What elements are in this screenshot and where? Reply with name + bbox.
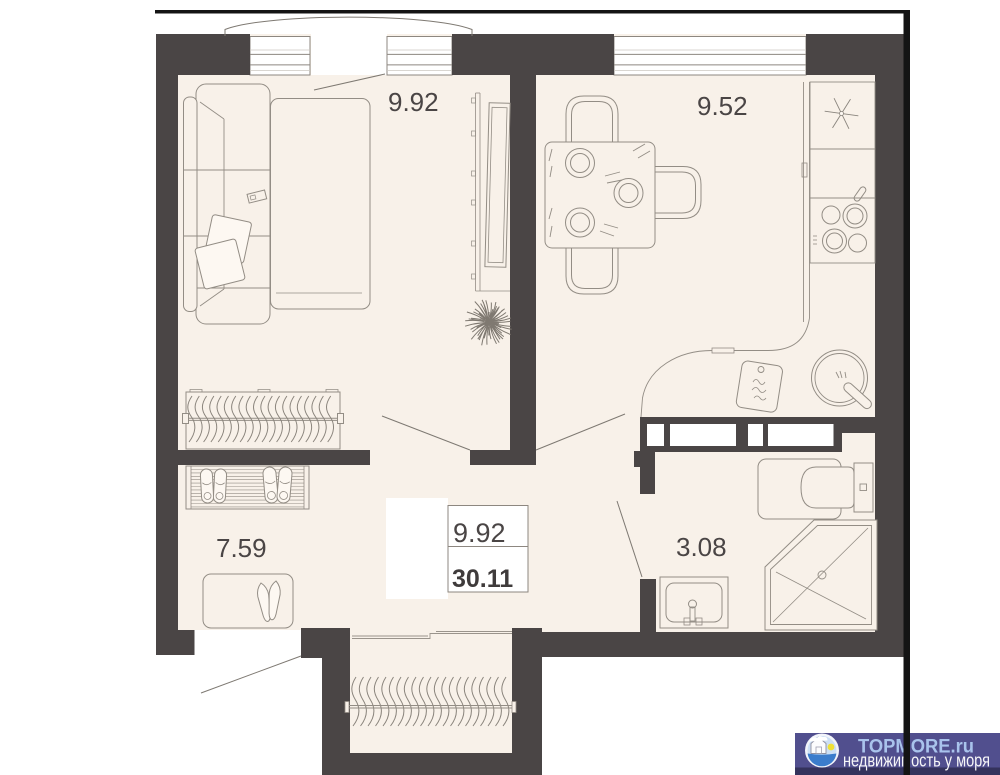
svg-text:30.11: 30.11	[452, 565, 513, 593]
svg-text:9.92: 9.92	[453, 518, 506, 548]
svg-text:3.08: 3.08	[676, 532, 727, 562]
svg-text:9.52: 9.52	[697, 91, 748, 121]
svg-text:7.59: 7.59	[216, 533, 267, 563]
svg-text:9.92: 9.92	[388, 87, 439, 117]
svg-text:недвижимость у моря: недвижимость у моря	[843, 751, 990, 771]
